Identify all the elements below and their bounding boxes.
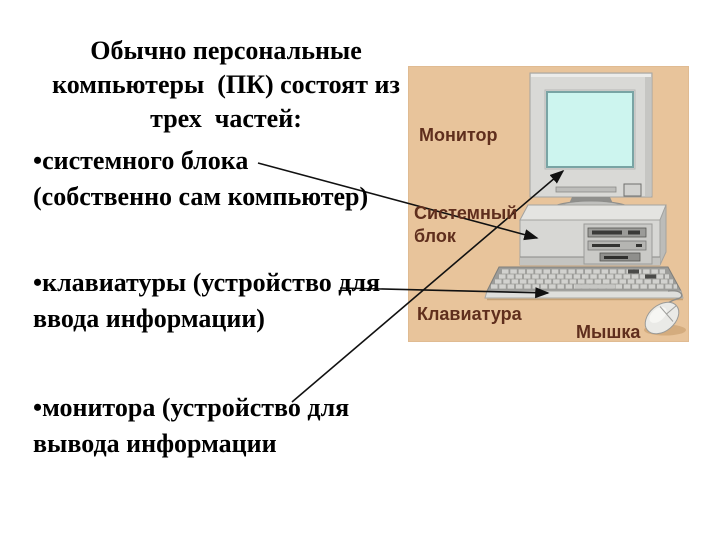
label-keyboard: Клавиатура <box>417 303 522 326</box>
monitor-graphic <box>530 73 652 217</box>
bullet-keyboard: •клавиатуры (устройство для ввода информ… <box>33 265 463 337</box>
system-unit-graphic <box>520 205 666 265</box>
keyboard-graphic <box>485 267 683 300</box>
slide-heading: Обычно персональные компьютеры (ПК) сост… <box>15 34 437 136</box>
bullet-monitor: •монитора (устройство для вывода информа… <box>33 390 463 462</box>
label-mouse: Мышка <box>576 321 640 344</box>
label-system-unit: Системный блок <box>414 202 517 248</box>
label-monitor: Монитор <box>419 124 498 147</box>
presentation-slide: Обычно персональные компьютеры (ПК) сост… <box>0 0 720 540</box>
bullet-system-unit: •системного блока (собственно сам компью… <box>33 143 463 215</box>
